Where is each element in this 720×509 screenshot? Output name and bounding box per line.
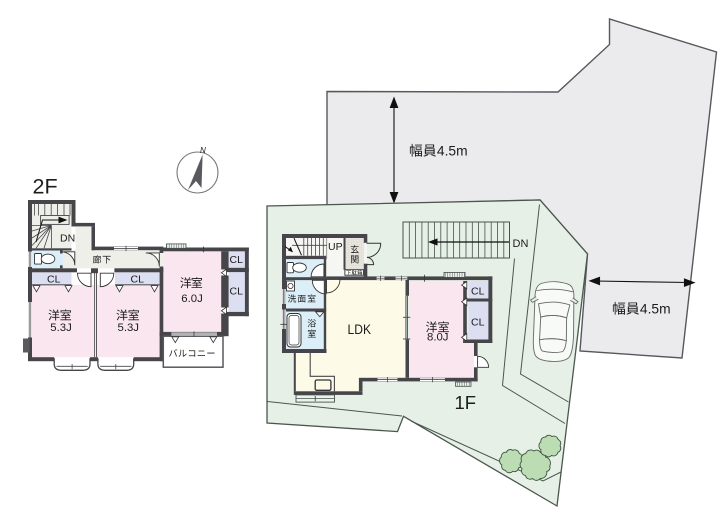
svg-text:CL: CL	[230, 254, 244, 266]
svg-text:CL: CL	[47, 274, 61, 286]
svg-text:5.3J: 5.3J	[50, 322, 72, 334]
svg-text:LDK: LDK	[348, 321, 372, 337]
svg-text:5.3J: 5.3J	[118, 322, 140, 334]
svg-text:UP: UP	[328, 241, 343, 253]
svg-text:CL: CL	[471, 317, 485, 329]
svg-text:CL: CL	[471, 286, 485, 298]
svg-text:1F: 1F	[455, 392, 477, 413]
svg-text:2F: 2F	[33, 175, 58, 199]
svg-text:8.0J: 8.0J	[427, 332, 449, 344]
svg-text:6.0J: 6.0J	[181, 293, 203, 305]
svg-text:4.5m: 4.5m	[437, 144, 468, 159]
svg-text:N: N	[200, 146, 206, 155]
svg-text:CL: CL	[131, 274, 145, 286]
svg-text:4.5m: 4.5m	[640, 302, 671, 317]
svg-text:CL: CL	[230, 286, 244, 298]
svg-text:DN: DN	[513, 238, 529, 250]
svg-text:DN: DN	[60, 233, 75, 245]
